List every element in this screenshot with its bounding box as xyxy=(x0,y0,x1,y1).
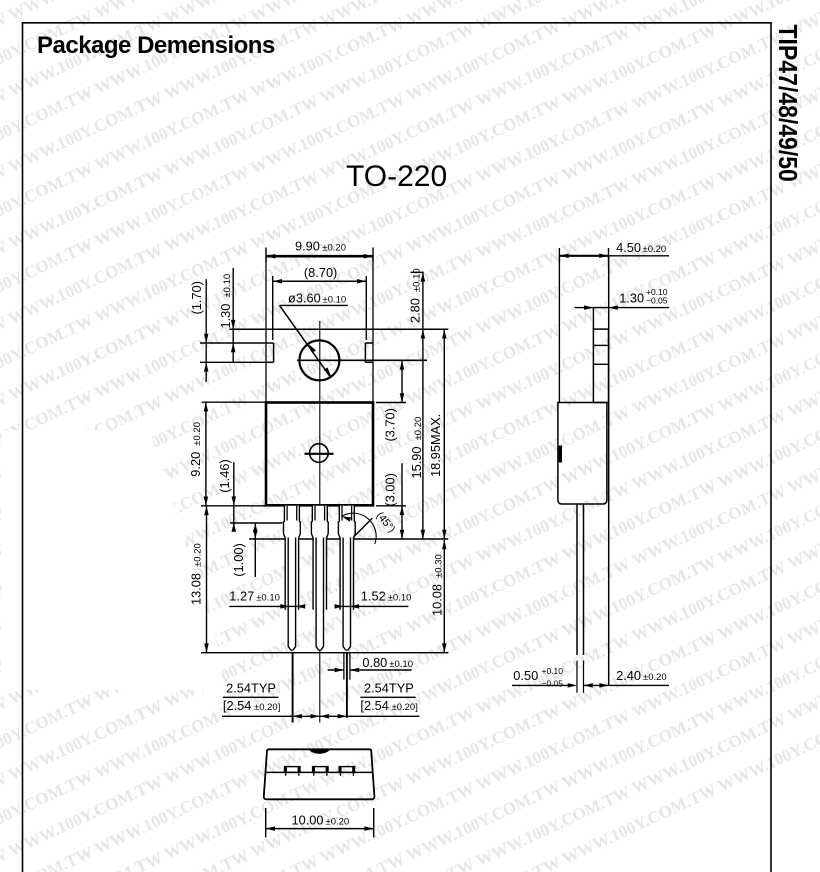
svg-text:TO-220: TO-220 xyxy=(346,160,447,193)
svg-text:(8.70): (8.70) xyxy=(304,265,337,280)
svg-text:9.90: 9.90 xyxy=(295,239,320,254)
svg-text:TIP47/48/49/50: TIP47/48/49/50 xyxy=(773,25,802,182)
svg-text:[2.54: [2.54 xyxy=(223,698,251,713)
svg-text:±0.20: ±0.20 xyxy=(326,817,350,828)
svg-text:(3.00): (3.00) xyxy=(382,473,397,506)
svg-text:±0.10: ±0.10 xyxy=(323,294,347,305)
svg-text:[2.54: [2.54 xyxy=(360,698,388,713)
svg-text:2.40: 2.40 xyxy=(616,668,641,683)
svg-text:±0.20: ±0.20 xyxy=(643,672,667,683)
svg-text:2.54TYP: 2.54TYP xyxy=(364,681,414,696)
svg-text:(1.46): (1.46) xyxy=(217,459,232,492)
svg-text:±0.10: ±0.10 xyxy=(388,593,412,604)
svg-text:13.08 ±0.20: 13.08 ±0.20 xyxy=(189,543,204,605)
svg-text:ø3.60: ø3.60 xyxy=(288,290,321,305)
svg-text:10.00: 10.00 xyxy=(292,813,324,828)
svg-text:18.95MAX.: 18.95MAX. xyxy=(428,414,443,477)
svg-text:±0.10: ±0.10 xyxy=(256,593,280,604)
svg-text:0.80: 0.80 xyxy=(362,655,387,670)
svg-text:Package Demensions: Package Demensions xyxy=(37,32,275,59)
svg-text:10.08 ±0.30: 10.08 ±0.30 xyxy=(430,554,445,616)
svg-text:2.54TYP: 2.54TYP xyxy=(226,681,276,696)
svg-text:+0.10: +0.10 xyxy=(542,666,564,676)
svg-text:1.52: 1.52 xyxy=(361,589,386,604)
svg-text:4.50: 4.50 xyxy=(616,240,641,255)
svg-text:1.27: 1.27 xyxy=(229,589,254,604)
svg-text:±0.10: ±0.10 xyxy=(389,659,413,670)
svg-text:−0.05: −0.05 xyxy=(542,678,564,688)
svg-text:(1.00): (1.00) xyxy=(231,543,246,576)
svg-text:1.30 ±0.10: 1.30 ±0.10 xyxy=(218,274,233,329)
svg-text:±0.20: ±0.20 xyxy=(322,243,346,254)
svg-text:±0.20]: ±0.20] xyxy=(392,702,418,713)
svg-text:(1.70): (1.70) xyxy=(189,281,204,314)
svg-text:(3.70): (3.70) xyxy=(382,408,397,441)
svg-text:0.50: 0.50 xyxy=(513,668,538,683)
svg-text:±0.20]: ±0.20] xyxy=(254,702,280,713)
svg-text:1.30: 1.30 xyxy=(619,291,644,306)
svg-text:−0.05: −0.05 xyxy=(646,295,668,305)
svg-text:±0.20: ±0.20 xyxy=(643,244,667,255)
